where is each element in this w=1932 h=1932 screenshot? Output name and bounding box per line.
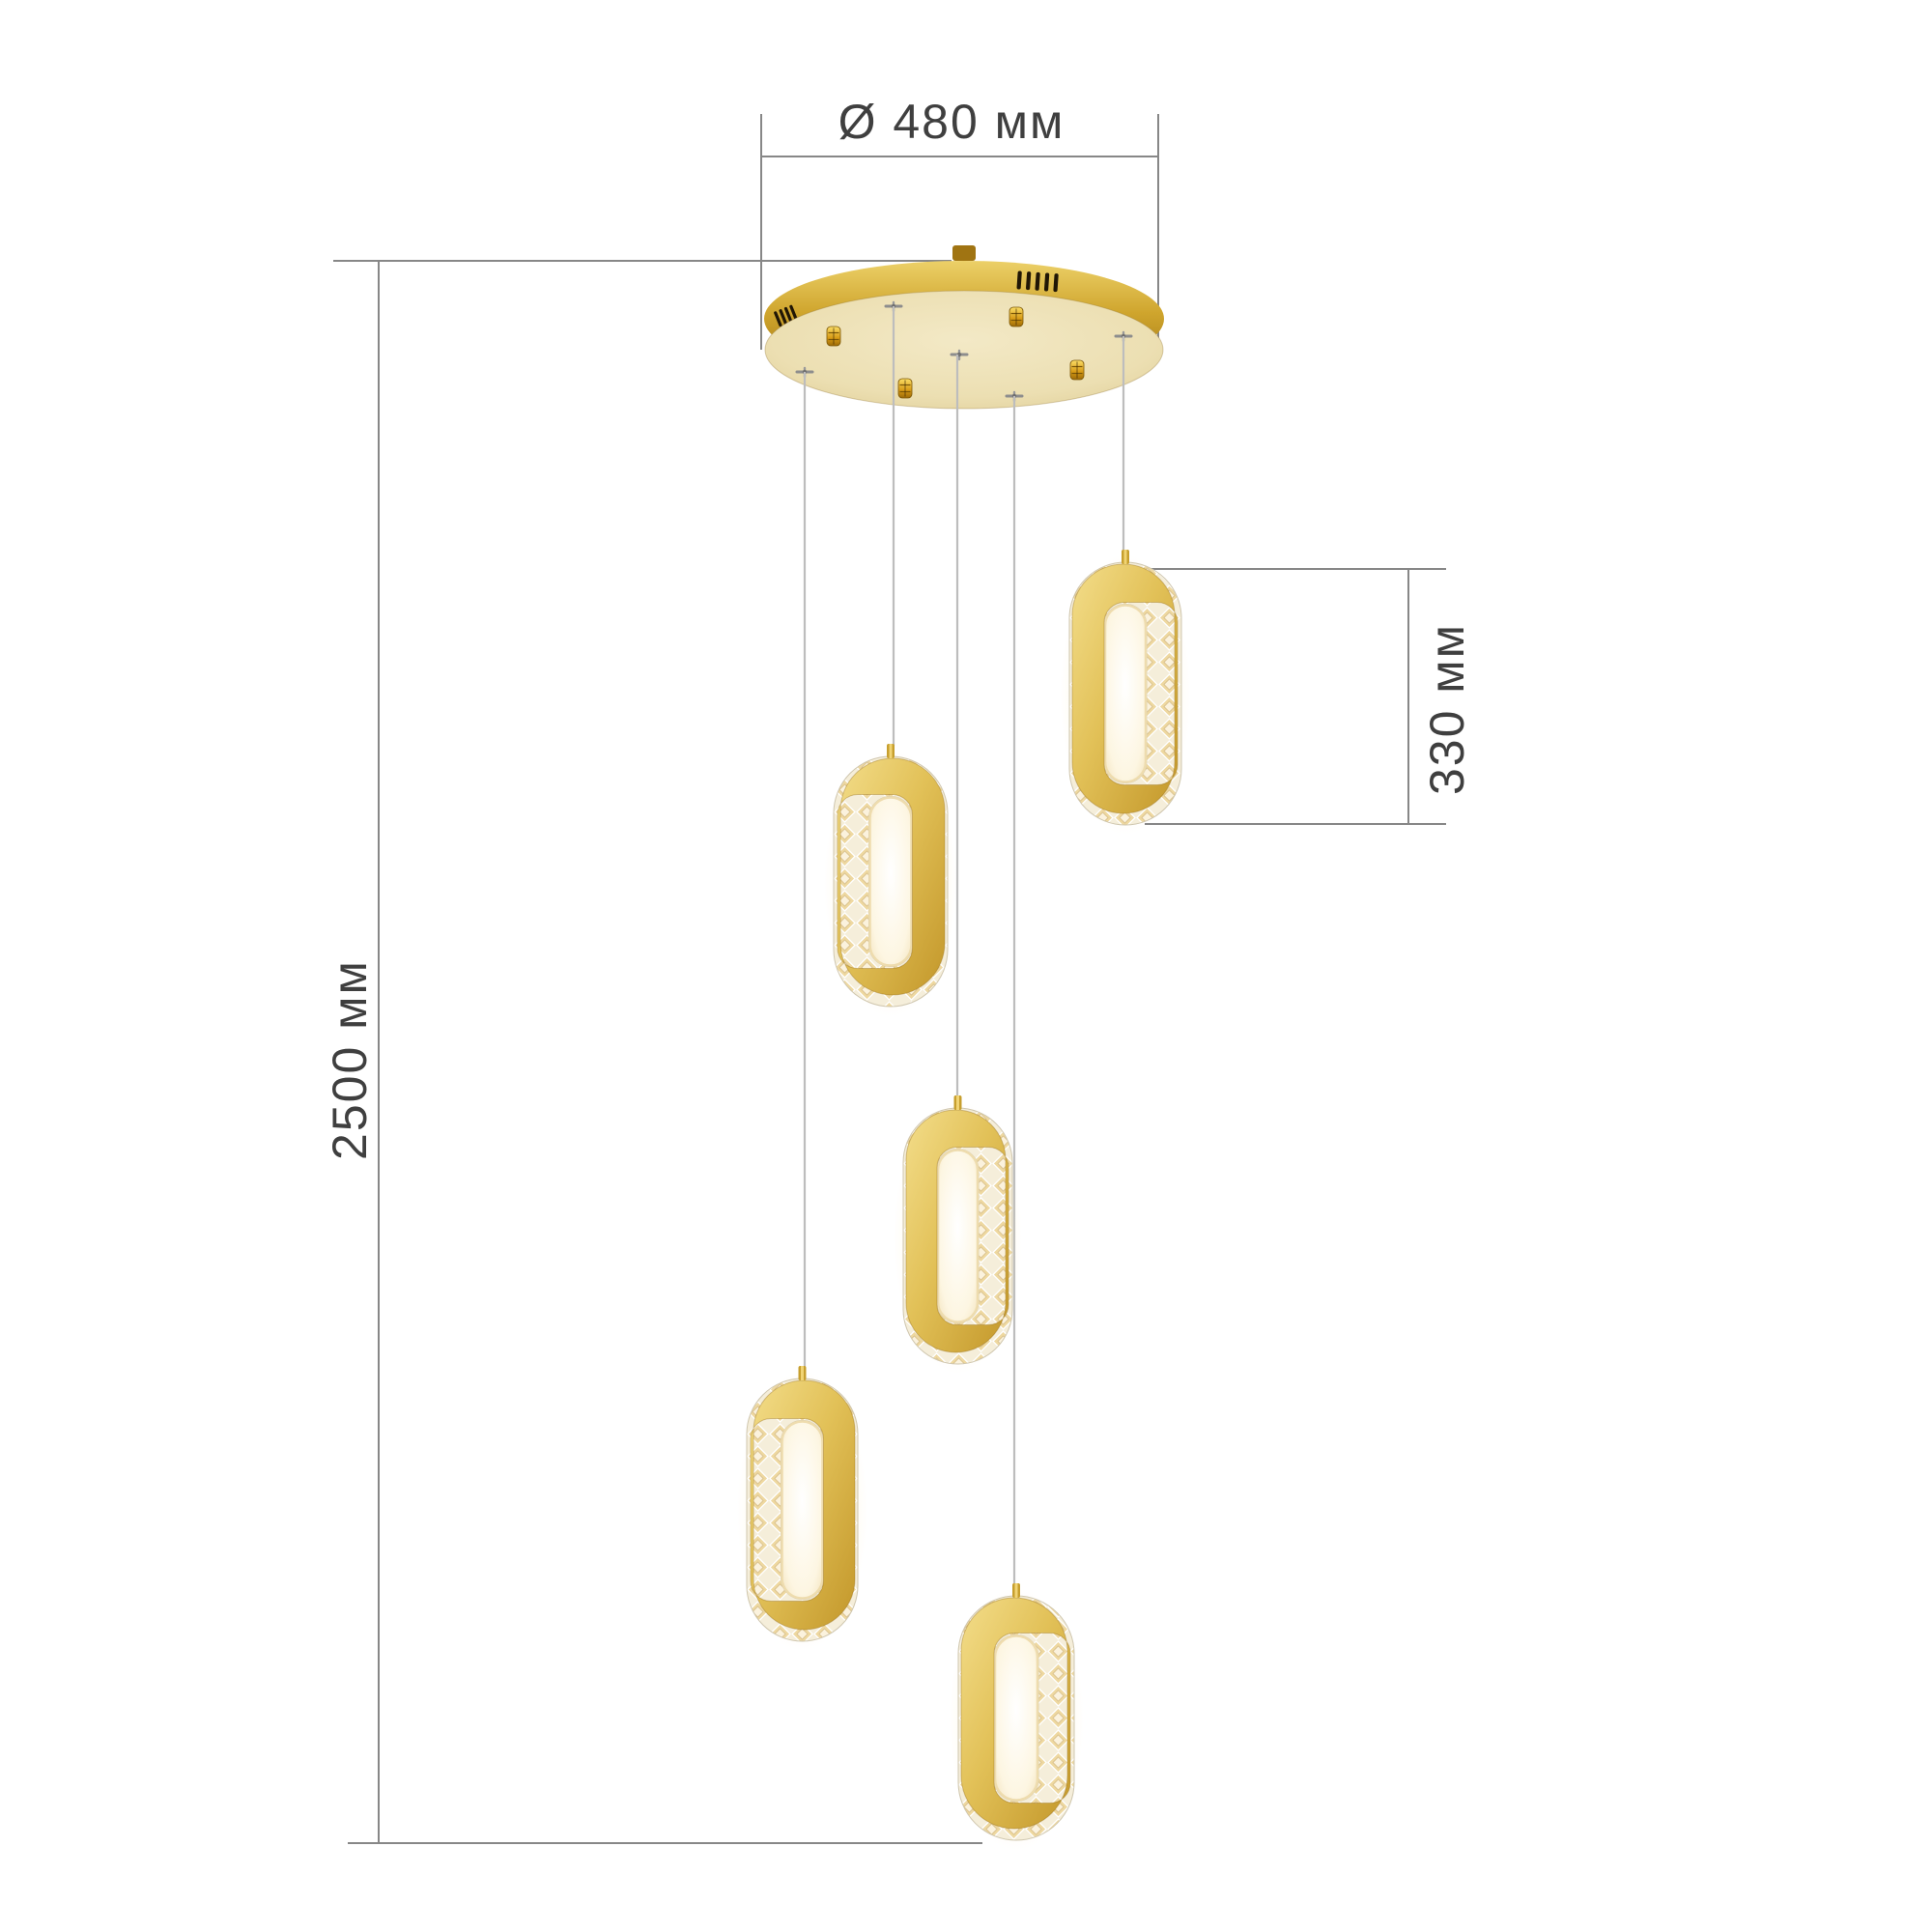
pendant [1060, 550, 1191, 835]
ceiling-canopy [764, 245, 1164, 409]
pendant-stem-highlight [1015, 1583, 1018, 1598]
pendant-stem-highlight [890, 744, 893, 758]
cable-gland [827, 327, 840, 346]
pendant-light-opening [1105, 606, 1146, 782]
cable-gland [1070, 360, 1084, 380]
pendant-light-opening [938, 1151, 978, 1322]
pendant [949, 1583, 1084, 1850]
pendant [894, 1095, 1022, 1374]
pendant-stem-highlight [801, 1366, 804, 1380]
pendant [824, 744, 957, 1016]
dimension-label-total-height: 2500 мм [326, 959, 374, 1160]
chandelier-diagram [0, 0, 1932, 1932]
pendant-light-opening [782, 1422, 823, 1599]
pendant [737, 1366, 867, 1651]
pendant-light-opening [995, 1636, 1037, 1801]
pendant-light-opening [870, 798, 912, 966]
canopy-face [765, 291, 1163, 409]
canopy-mount-stub [952, 245, 976, 261]
cable-gland [898, 379, 912, 398]
cable-gland [1009, 307, 1023, 327]
dimension-label-pendant-height: 330 мм [1423, 623, 1471, 795]
diagram-canvas: Ø 480 мм 2500 мм 330 мм [0, 0, 1932, 1932]
pendant-stem-highlight [956, 1095, 959, 1110]
pendant-stem-highlight [1124, 550, 1127, 564]
dimension-label-diameter: Ø 480 мм [838, 98, 1065, 146]
